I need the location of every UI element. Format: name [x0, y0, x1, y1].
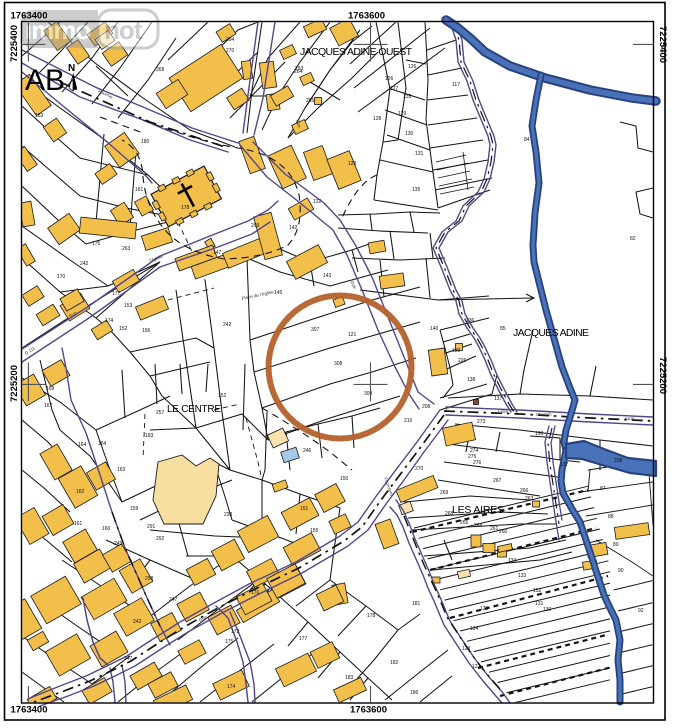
svg-text:160: 160 — [102, 526, 111, 532]
svg-text:210: 210 — [404, 418, 413, 424]
svg-text:121: 121 — [348, 332, 357, 338]
svg-text:JACQUES ADINE OUEST: JACQUES ADINE OUEST — [300, 46, 413, 58]
svg-text:N: N — [68, 63, 75, 74]
svg-text:1763600: 1763600 — [348, 11, 385, 22]
svg-text:182: 182 — [390, 660, 399, 666]
svg-text:7225200: 7225200 — [9, 365, 20, 402]
svg-text:308: 308 — [334, 361, 343, 367]
svg-text:265: 265 — [306, 98, 315, 104]
svg-text:Chemin: Chemin — [536, 412, 552, 417]
svg-text:7225400: 7225400 — [9, 25, 20, 62]
svg-text:131: 131 — [415, 151, 424, 157]
svg-text:126: 126 — [385, 76, 394, 82]
svg-text:C.: C. — [446, 407, 451, 412]
svg-text:309: 309 — [364, 391, 373, 397]
svg-text:159: 159 — [130, 506, 139, 512]
svg-text:123: 123 — [462, 646, 471, 652]
svg-text:167: 167 — [44, 403, 53, 409]
svg-text:152: 152 — [218, 393, 227, 399]
svg-text:183: 183 — [345, 675, 354, 681]
svg-text:133: 133 — [518, 573, 527, 579]
svg-text:LES AIRES: LES AIRES — [452, 504, 504, 516]
svg-text:180: 180 — [141, 139, 150, 145]
svg-text:299: 299 — [251, 223, 260, 229]
svg-text:162: 162 — [76, 489, 85, 495]
svg-text:169: 169 — [46, 386, 55, 392]
svg-text:127: 127 — [390, 86, 399, 92]
svg-text:163: 163 — [117, 467, 126, 473]
svg-text:117: 117 — [452, 82, 460, 88]
svg-text:174: 174 — [105, 318, 114, 324]
svg-text:84: 84 — [524, 137, 530, 143]
svg-text:rural: rural — [625, 416, 634, 421]
svg-text:130: 130 — [405, 131, 414, 137]
svg-text:257: 257 — [156, 410, 165, 416]
svg-text:269: 269 — [440, 490, 449, 496]
svg-text:128: 128 — [373, 116, 382, 122]
svg-text:242: 242 — [80, 261, 89, 267]
svg-text:178: 178 — [367, 613, 376, 619]
svg-text:7225200: 7225200 — [657, 357, 668, 394]
svg-text:260: 260 — [499, 529, 508, 535]
svg-text:1763600: 1763600 — [350, 705, 387, 716]
svg-text:135: 135 — [403, 94, 412, 100]
svg-text:190: 190 — [535, 431, 544, 437]
svg-text:181: 181 — [412, 601, 421, 607]
svg-text:92: 92 — [638, 608, 644, 614]
svg-text:276: 276 — [473, 460, 482, 466]
svg-text:LE CENTRE: LE CENTRE — [167, 404, 221, 415]
svg-text:161: 161 — [74, 521, 83, 527]
svg-text:122: 122 — [472, 664, 481, 670]
svg-text:143: 143 — [323, 273, 332, 279]
svg-text:137: 137 — [494, 396, 503, 402]
svg-text:270: 270 — [226, 48, 235, 54]
svg-text:264: 264 — [294, 69, 303, 75]
svg-text:156: 156 — [142, 328, 151, 334]
svg-text:126: 126 — [408, 64, 417, 70]
svg-text:175: 175 — [225, 639, 234, 645]
svg-text:181: 181 — [135, 187, 144, 193]
svg-text:267: 267 — [493, 478, 502, 484]
svg-text:247: 247 — [124, 656, 133, 662]
svg-text:298: 298 — [145, 576, 154, 582]
svg-text:170: 170 — [57, 274, 66, 280]
svg-text:173: 173 — [231, 629, 240, 635]
svg-text:155: 155 — [310, 528, 319, 534]
svg-text:129: 129 — [398, 111, 407, 117]
svg-text:150: 150 — [340, 476, 349, 482]
svg-text:1763400: 1763400 — [11, 11, 48, 22]
svg-text:not: not — [104, 15, 143, 45]
svg-text:151: 151 — [300, 506, 309, 512]
svg-text:164: 164 — [98, 441, 107, 447]
svg-text:183: 183 — [145, 433, 154, 439]
svg-text:292: 292 — [156, 536, 165, 542]
svg-text:208: 208 — [422, 404, 431, 410]
svg-text:247: 247 — [169, 597, 178, 603]
svg-text:174: 174 — [227, 684, 236, 690]
svg-text:145: 145 — [274, 290, 283, 296]
svg-text:AB: AB — [25, 64, 65, 97]
svg-text:261: 261 — [490, 526, 499, 532]
svg-text:164: 164 — [78, 442, 87, 448]
svg-text:186: 186 — [410, 690, 419, 696]
svg-text:183: 183 — [35, 113, 44, 119]
svg-text:122: 122 — [313, 199, 322, 205]
svg-text:123: 123 — [348, 161, 357, 167]
svg-text:263: 263 — [525, 496, 534, 502]
svg-text:264: 264 — [474, 523, 483, 529]
svg-text:152: 152 — [119, 326, 128, 332]
svg-text:132: 132 — [533, 588, 542, 594]
svg-text:246: 246 — [303, 448, 312, 454]
svg-text:226: 226 — [458, 358, 467, 364]
svg-text:208: 208 — [614, 458, 623, 464]
svg-text:134: 134 — [508, 558, 517, 564]
svg-text:138: 138 — [467, 377, 476, 383]
svg-text:242: 242 — [223, 322, 232, 328]
svg-text:125: 125 — [480, 606, 489, 612]
svg-text:135: 135 — [412, 187, 421, 193]
svg-text:294: 294 — [226, 37, 235, 43]
svg-text:124: 124 — [470, 626, 479, 632]
svg-text:263: 263 — [122, 246, 131, 252]
svg-text:139: 139 — [452, 348, 461, 354]
svg-text:270: 270 — [415, 466, 424, 472]
svg-text:1763400: 1763400 — [11, 705, 48, 716]
svg-text:130: 130 — [543, 607, 552, 613]
svg-text:89: 89 — [613, 542, 619, 548]
svg-text:176: 176 — [251, 590, 260, 596]
svg-text:140: 140 — [430, 326, 439, 332]
svg-text:88: 88 — [608, 514, 614, 520]
svg-text:175: 175 — [92, 241, 101, 247]
svg-text:268: 268 — [156, 67, 165, 73]
svg-text:307: 307 — [311, 327, 320, 333]
svg-text:85: 85 — [500, 326, 506, 332]
svg-text:242: 242 — [133, 619, 142, 625]
svg-text:268: 268 — [445, 511, 454, 517]
svg-text:142: 142 — [289, 225, 298, 231]
svg-text:177: 177 — [112, 291, 121, 297]
svg-text:177: 177 — [299, 636, 308, 642]
svg-text:136: 136 — [466, 318, 475, 324]
svg-text:238: 238 — [224, 512, 233, 518]
svg-text:266: 266 — [520, 488, 529, 494]
svg-text:137: 137 — [560, 462, 569, 468]
svg-text:291: 291 — [147, 524, 156, 530]
svg-text:Libre: Libre — [498, 409, 509, 414]
svg-text:273: 273 — [477, 419, 486, 425]
svg-text:JACQUES ADINE: JACQUES ADINE — [513, 327, 589, 339]
svg-text:265: 265 — [460, 520, 469, 526]
svg-text:147: 147 — [213, 250, 222, 256]
svg-text:245: 245 — [114, 541, 123, 547]
svg-text:7225400: 7225400 — [657, 26, 668, 63]
svg-text:178: 178 — [181, 205, 190, 211]
svg-text:90: 90 — [618, 568, 624, 574]
svg-text:153: 153 — [124, 303, 133, 309]
svg-text:87: 87 — [600, 486, 606, 492]
svg-text:82: 82 — [630, 236, 636, 242]
